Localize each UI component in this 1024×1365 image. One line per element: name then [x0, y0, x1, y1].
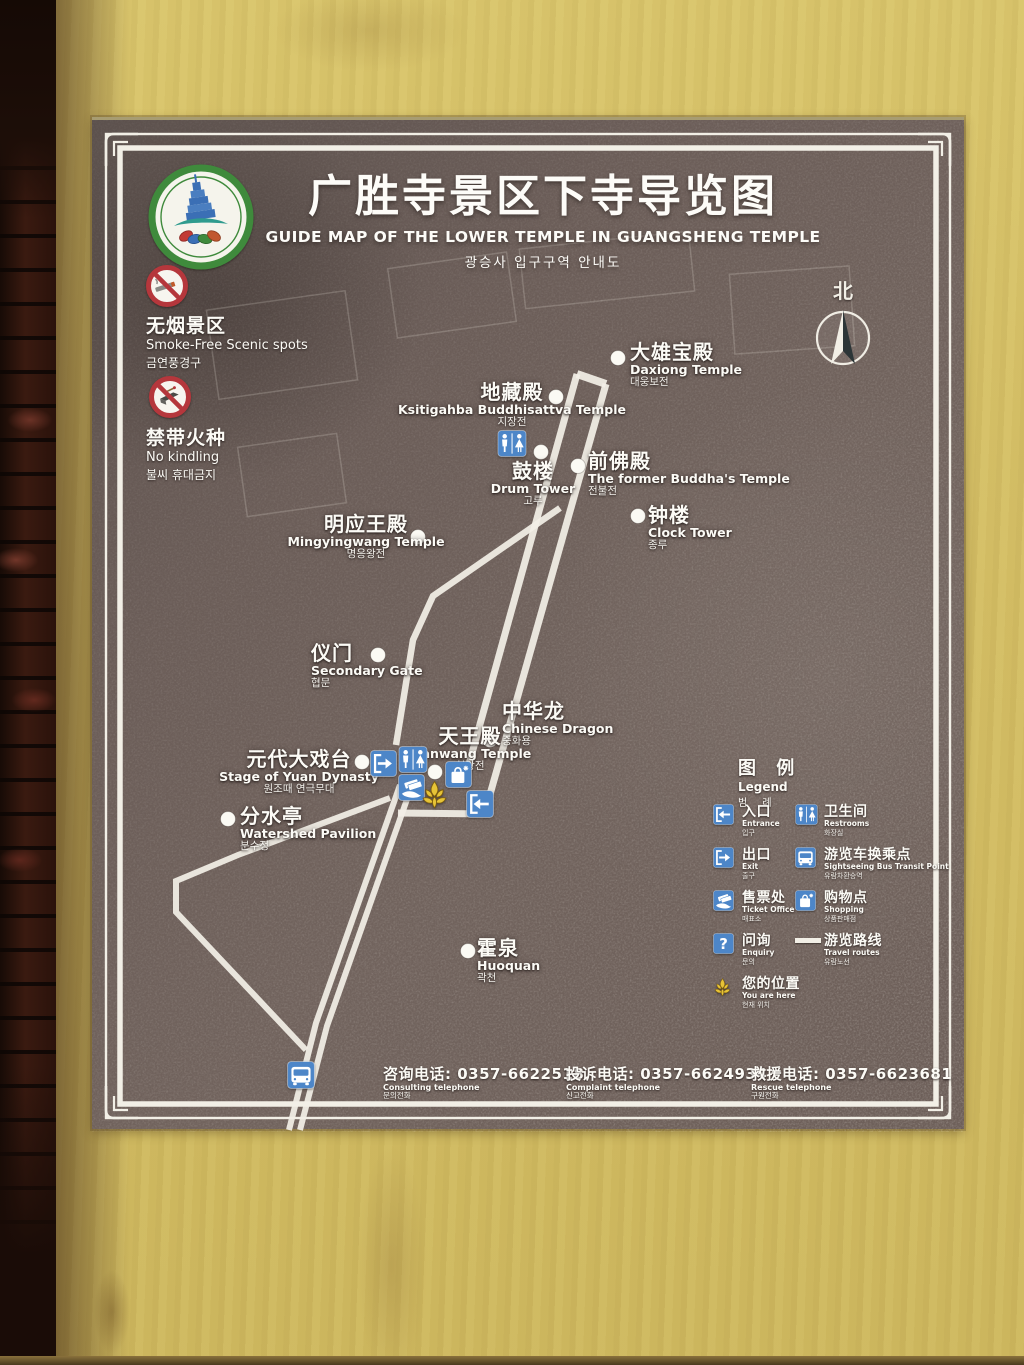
- brick-wall: [0, 0, 56, 1365]
- exit-icon: [370, 750, 397, 777]
- exit-icon: [713, 847, 734, 868]
- map-label-secondary-gate: 仪门Secondary Gate협문: [311, 642, 423, 690]
- legend-item-shopping: 购物点Shopping상품판매점: [824, 890, 868, 923]
- compass-north-label: 北: [833, 275, 853, 304]
- legend-item-bus-transit: 游览车换乘点Sightseeing Bus Transit Point유람차환승…: [824, 847, 949, 880]
- you-are-here-icon: [713, 976, 732, 999]
- entrance-icon: [466, 790, 494, 818]
- dot-watershed-pavilion: [221, 812, 236, 827]
- legend-item-exit: 出口Exit출구: [742, 847, 771, 880]
- legend-item-travel-routes: 游览路线Travel routes유람노선: [824, 933, 882, 966]
- legend-item-ticket-office: 售票处Ticket Office매표소: [742, 890, 794, 923]
- phone-number: 0357-6623681: [825, 1065, 952, 1083]
- title-korean: 광승사 입구구역 안내도: [266, 251, 821, 271]
- legend-title: 图 例 Legend 범 례: [738, 754, 801, 809]
- phone-consulting: 咨询电话: 0357-6622518 Consulting telephone …: [383, 1066, 584, 1101]
- no-kindling-icon: [148, 375, 192, 419]
- dot-daxiong-temple: [611, 351, 626, 366]
- legend-item-enquiry: 问询Enquiry문의: [742, 933, 774, 966]
- restroom-icon: [795, 804, 818, 825]
- map-label-yuan-dynasty-stage: 元代大戏台Stage of Yuan Dynasty원조때 연극무대: [219, 748, 379, 796]
- enquiry-icon: [713, 933, 734, 954]
- dot-clock-tower: [631, 509, 646, 524]
- notice-no-smoking: 无烟景区 Smoke-Free Scenic spots 금연풍경구: [146, 311, 308, 371]
- restroom-icon: [398, 746, 428, 773]
- legend-item-entrance: 入口Entrance입구: [742, 804, 780, 837]
- restroom-icon: [497, 430, 527, 457]
- map-label-drum-tower: 鼓楼Drum Tower고루: [491, 460, 575, 508]
- notice-no-kindling: 禁带火种 No kindling 불씨 휴대금지: [146, 423, 226, 483]
- map-label-mingyingwang-temple: 明应王殿Mingyingwang Temple명응왕전: [287, 513, 444, 561]
- north-compass-icon: [817, 310, 869, 364]
- dot-drum-tower: [534, 445, 549, 460]
- shopping-icon: [795, 890, 816, 911]
- scenic-area-emblem-icon: [148, 164, 254, 270]
- shopping-icon: [445, 761, 472, 788]
- map-label-watershed-pavilion: 分水亭Watershed Pavilion분수정: [240, 805, 376, 853]
- dot-huoquan-spring: [461, 944, 476, 959]
- map-label-ksitigahba-temple: 地藏殿Ksitigahba Buddhisattva Temple지장전: [398, 381, 626, 429]
- title-english: GUIDE MAP OF THE LOWER TEMPLE IN GUANGSH…: [266, 228, 821, 246]
- no-smoking-icon: [145, 264, 189, 308]
- entrance-icon: [713, 804, 734, 825]
- bus-icon: [795, 847, 816, 868]
- legend-item-you-are-here: 您的位置You are here현재 위치: [742, 976, 800, 1009]
- map-label-clock-tower: 钟楼Clock Tower종루: [648, 504, 732, 552]
- wall-bottom-edge: [0, 1356, 1024, 1365]
- bus-icon: [286, 1061, 316, 1089]
- sign-title: 广胜寺景区下寺导览图 GUIDE MAP OF THE LOWER TEMPLE…: [266, 160, 821, 271]
- you-are-here-marker: [420, 778, 449, 812]
- guide-map-panel: 广胜寺景区下寺导览图 GUIDE MAP OF THE LOWER TEMPLE…: [92, 117, 964, 1129]
- map-label-huoquan-spring: 霍泉Huoquan곽천: [477, 937, 540, 985]
- phone-rescue: 救援电话: 0357-6623681 Rescue telephone 구원전화: [751, 1066, 952, 1101]
- phone-number: 0357-6624934: [640, 1065, 767, 1083]
- phone-complaint: 投诉电话: 0357-6624934 Complaint telephone 신…: [566, 1066, 767, 1101]
- map-label-daxiong-temple: 大雄宝殿Daxiong Temple대웅보전: [630, 341, 742, 389]
- map-label-former-buddha-temple: 前佛殿The former Buddha's Temple전불전: [588, 450, 790, 498]
- photo-of-guide-map-sign: 广胜寺景区下寺导览图 GUIDE MAP OF THE LOWER TEMPLE…: [0, 0, 1024, 1365]
- legend-item-restrooms: 卫生间Restrooms화장실: [824, 804, 869, 837]
- ticket-office-icon: [713, 890, 734, 911]
- route-line-icon: [795, 938, 821, 943]
- title-chinese: 广胜寺景区下寺导览图: [266, 160, 821, 224]
